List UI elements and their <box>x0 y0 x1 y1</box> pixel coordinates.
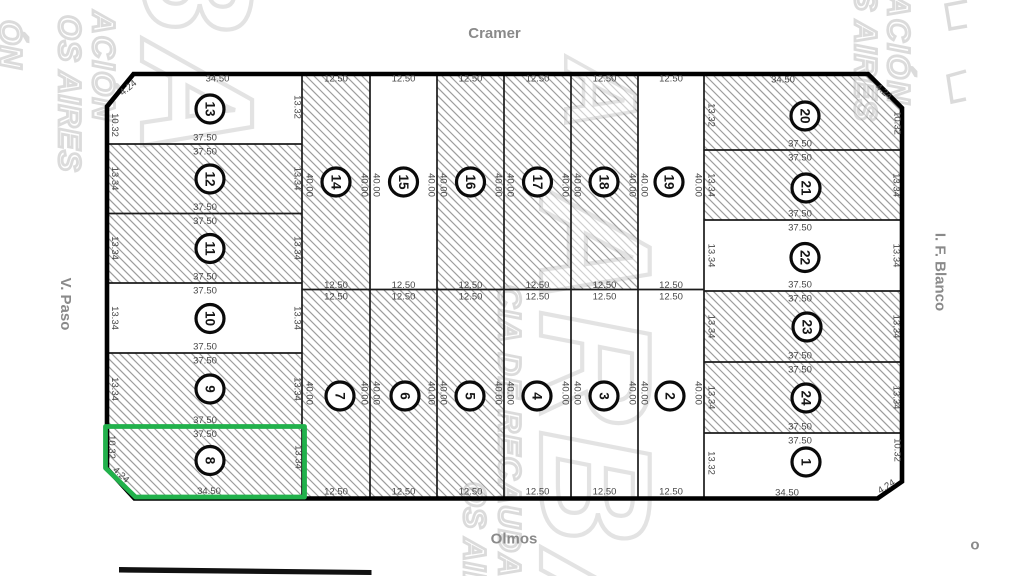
svg-text:23: 23 <box>800 319 815 335</box>
svg-text:37.50: 37.50 <box>788 436 812 447</box>
svg-text:10.32: 10.32 <box>892 111 903 135</box>
svg-text:13.34: 13.34 <box>292 236 303 260</box>
svg-text:40.00: 40.00 <box>359 173 370 197</box>
svg-text:12.50: 12.50 <box>593 74 617 85</box>
svg-text:Olmos: Olmos <box>491 531 538 548</box>
svg-text:13.34: 13.34 <box>706 244 717 268</box>
svg-text:12.50: 12.50 <box>526 74 550 85</box>
svg-text:12.50: 12.50 <box>392 74 416 85</box>
svg-text:13.34: 13.34 <box>891 173 902 197</box>
svg-text:16: 16 <box>463 174 478 190</box>
svg-text:13.34: 13.34 <box>891 315 902 339</box>
svg-text:40.00: 40.00 <box>493 173 504 197</box>
svg-text:10.32: 10.32 <box>892 438 903 462</box>
svg-text:13.34: 13.34 <box>891 244 902 268</box>
svg-text:37.50: 37.50 <box>193 342 217 353</box>
svg-text:OS AIRES: OS AIRES <box>52 15 88 172</box>
svg-text:37.50: 37.50 <box>788 209 812 220</box>
svg-text:40.00: 40.00 <box>627 173 638 197</box>
svg-text:37.50: 37.50 <box>193 216 217 227</box>
svg-text:13.34: 13.34 <box>109 377 120 401</box>
svg-text:I. F. Blanco: I. F. Blanco <box>932 233 949 311</box>
svg-text:12.50: 12.50 <box>459 487 483 498</box>
svg-text:13: 13 <box>203 101 218 117</box>
svg-text:37.50: 37.50 <box>193 356 217 367</box>
svg-text:40.00: 40.00 <box>371 381 382 405</box>
svg-text:37.50: 37.50 <box>193 286 217 297</box>
svg-text:13.32: 13.32 <box>706 103 717 127</box>
svg-text:40.00: 40.00 <box>304 173 315 197</box>
svg-text:37.50: 37.50 <box>193 272 217 283</box>
svg-text:37.50: 37.50 <box>193 202 217 213</box>
svg-text:37.50: 37.50 <box>193 429 217 440</box>
svg-text:40.00: 40.00 <box>627 381 638 405</box>
svg-text:40.00: 40.00 <box>493 381 504 405</box>
svg-text:ÓN: ÓN <box>0 20 29 70</box>
svg-text:17: 17 <box>530 174 545 189</box>
svg-text:21: 21 <box>799 180 814 196</box>
svg-text:12.50: 12.50 <box>392 292 416 303</box>
svg-text:34.50: 34.50 <box>206 74 230 85</box>
svg-text:40.00: 40.00 <box>693 173 704 197</box>
svg-text:37.50: 37.50 <box>788 153 812 164</box>
svg-text:Cramer: Cramer <box>468 25 521 42</box>
svg-text:40.00: 40.00 <box>505 173 516 197</box>
svg-text:37.50: 37.50 <box>788 351 812 362</box>
svg-text:13.34: 13.34 <box>891 386 902 410</box>
svg-text:13.34: 13.34 <box>293 445 304 469</box>
svg-text:12.50: 12.50 <box>459 280 483 291</box>
svg-text:37.50: 37.50 <box>788 223 812 234</box>
svg-text:13.34: 13.34 <box>109 236 120 260</box>
svg-text:13.34: 13.34 <box>292 306 303 330</box>
svg-text:13.34: 13.34 <box>706 315 717 339</box>
svg-text:37.50: 37.50 <box>788 365 812 376</box>
svg-text:12.50: 12.50 <box>459 292 483 303</box>
svg-text:37.50: 37.50 <box>788 139 812 150</box>
svg-text:12.50: 12.50 <box>526 292 550 303</box>
svg-text:13.32: 13.32 <box>706 451 717 475</box>
svg-text:13.34: 13.34 <box>109 167 120 191</box>
svg-text:40.00: 40.00 <box>438 381 449 405</box>
svg-text:40.00: 40.00 <box>426 381 437 405</box>
svg-text:12.50: 12.50 <box>659 74 683 85</box>
svg-text:10.32: 10.32 <box>109 113 120 137</box>
svg-text:12.50: 12.50 <box>459 74 483 85</box>
svg-text:12.50: 12.50 <box>659 280 683 291</box>
svg-text:37.50: 37.50 <box>788 294 812 305</box>
svg-text:12.50: 12.50 <box>392 280 416 291</box>
svg-text:40.00: 40.00 <box>304 381 315 405</box>
svg-text:40.00: 40.00 <box>560 381 571 405</box>
svg-text:40.00: 40.00 <box>426 173 437 197</box>
svg-text:37.50: 37.50 <box>788 280 812 291</box>
svg-text:14: 14 <box>329 174 344 190</box>
svg-text:8: 8 <box>203 457 218 465</box>
svg-text:11: 11 <box>203 241 218 256</box>
svg-text:13.34: 13.34 <box>292 167 303 191</box>
svg-text:4: 4 <box>530 392 545 400</box>
svg-text:12.50: 12.50 <box>392 487 416 498</box>
svg-text:40.00: 40.00 <box>560 173 571 197</box>
svg-text:12.50: 12.50 <box>593 280 617 291</box>
svg-text:34.50: 34.50 <box>771 75 795 86</box>
svg-text:V. Paso: V. Paso <box>57 278 74 331</box>
svg-text:40.00: 40.00 <box>572 173 583 197</box>
svg-text:40.00: 40.00 <box>572 381 583 405</box>
svg-text:19: 19 <box>662 174 677 189</box>
svg-text:12.50: 12.50 <box>324 74 348 85</box>
svg-text:22: 22 <box>798 250 813 265</box>
svg-text:13.34: 13.34 <box>109 306 120 330</box>
svg-text:13.34: 13.34 <box>292 377 303 401</box>
svg-text:5: 5 <box>463 392 478 400</box>
svg-text:40.00: 40.00 <box>639 173 650 197</box>
svg-text:12.50: 12.50 <box>324 487 348 498</box>
svg-text:12.50: 12.50 <box>659 292 683 303</box>
svg-text:o: o <box>970 537 979 554</box>
svg-text:S AIRES: S AIRES <box>848 0 884 122</box>
svg-text:13.34: 13.34 <box>706 386 717 410</box>
svg-text:18: 18 <box>597 174 612 190</box>
svg-text:2: 2 <box>663 392 678 400</box>
svg-text:40.00: 40.00 <box>438 173 449 197</box>
svg-text:12.50: 12.50 <box>526 487 550 498</box>
svg-text:6: 6 <box>398 392 413 400</box>
svg-text:12.50: 12.50 <box>593 292 617 303</box>
svg-text:37.50: 37.50 <box>788 422 812 433</box>
svg-text:12.50: 12.50 <box>324 280 348 291</box>
svg-text:40.00: 40.00 <box>505 381 516 405</box>
svg-text:37.50: 37.50 <box>193 147 217 158</box>
svg-text:40.00: 40.00 <box>359 381 370 405</box>
svg-text:10: 10 <box>203 311 218 326</box>
svg-text:1: 1 <box>799 458 814 466</box>
svg-text:3: 3 <box>597 392 612 400</box>
svg-text:ACIÓN: ACIÓN <box>86 10 122 123</box>
svg-text:37.50: 37.50 <box>193 133 217 144</box>
svg-text:9: 9 <box>203 385 218 393</box>
svg-text:12.50: 12.50 <box>659 487 683 498</box>
svg-text:12: 12 <box>203 171 218 186</box>
svg-text:A: A <box>544 55 656 134</box>
svg-text:40.00: 40.00 <box>693 381 704 405</box>
svg-text:7: 7 <box>333 392 348 400</box>
svg-text:13.32: 13.32 <box>292 95 303 119</box>
svg-text:40.00: 40.00 <box>639 381 650 405</box>
svg-text:13.34: 13.34 <box>706 173 717 197</box>
svg-text:34.50: 34.50 <box>775 488 799 499</box>
svg-text:20: 20 <box>798 108 813 123</box>
svg-text:12.50: 12.50 <box>526 280 550 291</box>
svg-text:15: 15 <box>396 174 411 190</box>
svg-text:12.50: 12.50 <box>593 487 617 498</box>
svg-text:12.50: 12.50 <box>324 292 348 303</box>
svg-text:40.00: 40.00 <box>371 173 382 197</box>
svg-text:24: 24 <box>799 390 814 406</box>
